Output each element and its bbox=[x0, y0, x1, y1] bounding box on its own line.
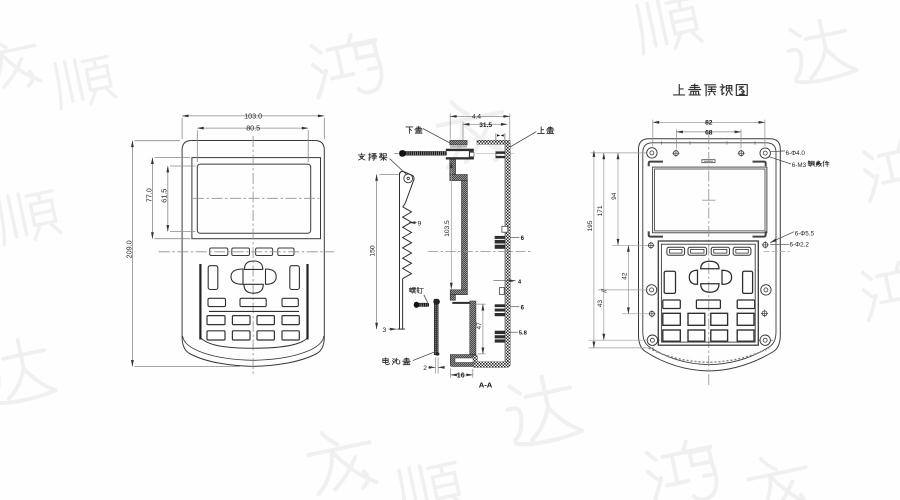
svg-text:43: 43 bbox=[597, 300, 604, 308]
svg-text:171: 171 bbox=[597, 205, 604, 216]
svg-text:2: 2 bbox=[423, 365, 427, 372]
svg-text:6-Φ2.2: 6-Φ2.2 bbox=[790, 242, 810, 249]
svg-text:61.5: 61.5 bbox=[160, 189, 169, 203]
svg-text:16: 16 bbox=[457, 373, 465, 380]
svg-text:94: 94 bbox=[611, 192, 618, 200]
svg-text:47: 47 bbox=[476, 322, 483, 330]
svg-text:A-A: A-A bbox=[479, 380, 493, 389]
svg-text:4.4: 4.4 bbox=[472, 113, 481, 120]
svg-text:3: 3 bbox=[383, 327, 387, 334]
svg-text:195: 195 bbox=[587, 220, 594, 231]
svg-text:68: 68 bbox=[705, 129, 713, 136]
svg-text:150: 150 bbox=[370, 245, 377, 257]
svg-text:5.8: 5.8 bbox=[519, 331, 528, 337]
svg-text:77.0: 77.0 bbox=[144, 188, 153, 202]
svg-text:31.5: 31.5 bbox=[479, 122, 492, 129]
svg-text:209.0: 209.0 bbox=[124, 240, 133, 258]
svg-text:6-M3: 6-M3 bbox=[792, 162, 807, 169]
svg-text:103.0: 103.0 bbox=[244, 111, 262, 120]
svg-text:80.5: 80.5 bbox=[246, 124, 260, 133]
svg-text:82: 82 bbox=[705, 120, 713, 127]
svg-text:6-Φ4.0: 6-Φ4.0 bbox=[786, 150, 806, 157]
svg-text:9: 9 bbox=[418, 221, 422, 228]
svg-text:6-Φ5.5: 6-Φ5.5 bbox=[795, 230, 815, 237]
svg-text:42: 42 bbox=[622, 272, 629, 280]
svg-text:103.5: 103.5 bbox=[444, 220, 451, 237]
